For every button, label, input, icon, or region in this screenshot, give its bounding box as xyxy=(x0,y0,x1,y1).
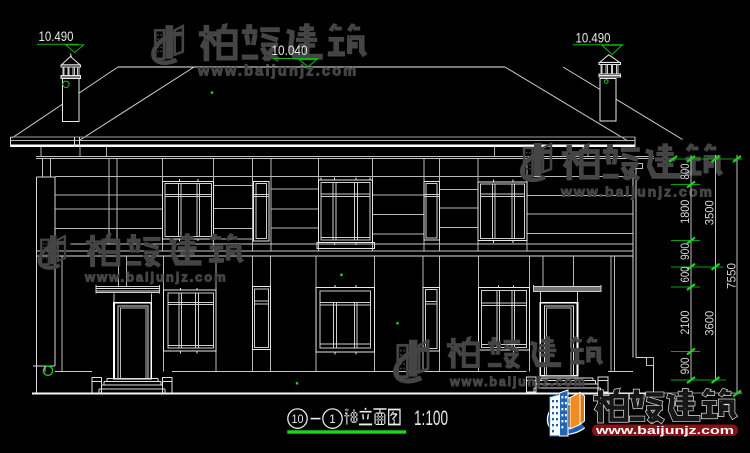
svg-text:1:100: 1:100 xyxy=(414,406,448,430)
svg-text:3500: 3500 xyxy=(705,200,717,225)
svg-text:600: 600 xyxy=(680,267,692,283)
svg-text:2100: 2100 xyxy=(680,311,692,335)
svg-text:1: 1 xyxy=(329,412,336,426)
svg-text:800: 800 xyxy=(680,164,692,180)
svg-text:900: 900 xyxy=(680,357,692,374)
svg-text:10: 10 xyxy=(292,412,304,426)
svg-text:10.490: 10.490 xyxy=(576,31,611,46)
svg-text:10.490: 10.490 xyxy=(39,29,74,44)
svg-text:10.040: 10.040 xyxy=(272,43,308,58)
svg-text:www.baijunjz.com: www.baijunjz.com xyxy=(197,64,358,80)
svg-text:www.baijunjz.com: www.baijunjz.com xyxy=(84,270,228,285)
svg-text:900: 900 xyxy=(680,243,692,260)
svg-text:7550: 7550 xyxy=(727,263,739,289)
svg-text:www.baijunjz.com: www.baijunjz.com xyxy=(595,425,735,437)
svg-text:www.baijunjz.com: www.baijunjz.com xyxy=(449,375,587,389)
svg-text:3600: 3600 xyxy=(705,311,717,336)
svg-text:1800: 1800 xyxy=(680,200,692,224)
